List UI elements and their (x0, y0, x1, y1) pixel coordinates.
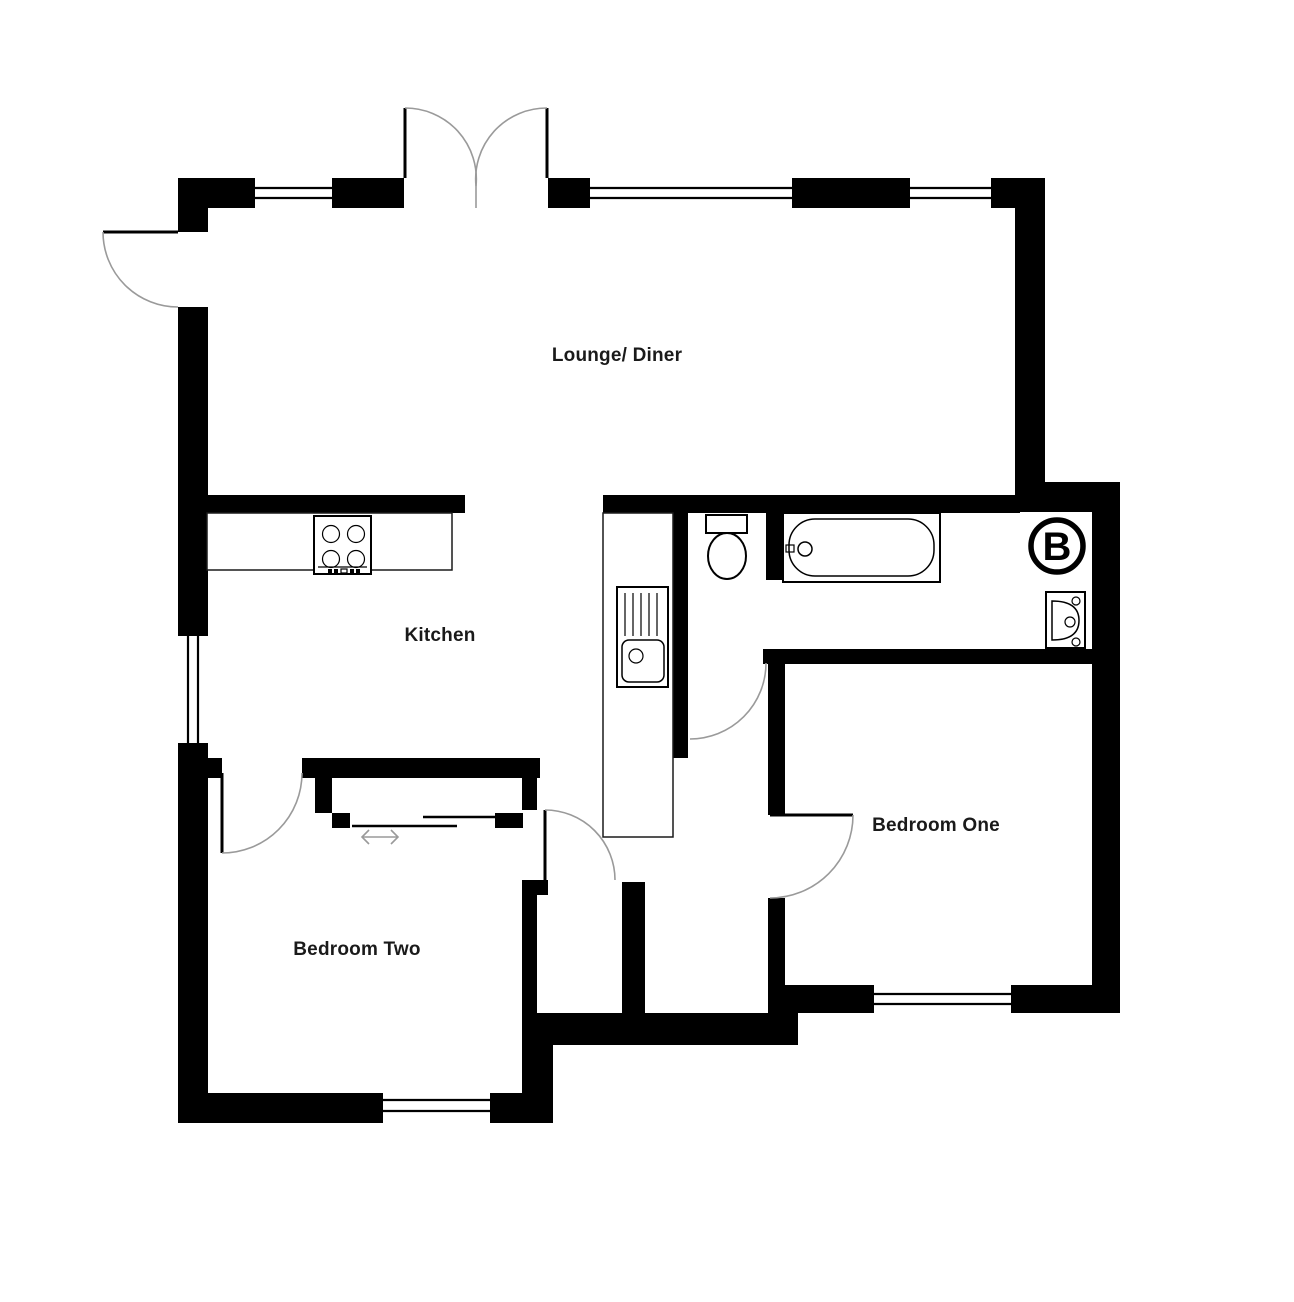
wall (178, 1093, 383, 1123)
kitchen-sink (617, 587, 668, 687)
wall (537, 1013, 798, 1045)
bathroom-fixtures: B (706, 513, 1085, 648)
kitchen-fixtures (207, 513, 673, 837)
wall (178, 743, 208, 1123)
wall (766, 513, 782, 580)
wall (991, 178, 1045, 208)
slide-direction-arrow-icon (362, 830, 398, 844)
window (188, 636, 198, 743)
boiler-letter: B (1043, 525, 1072, 569)
wall (178, 307, 208, 636)
entrance-door (103, 232, 178, 307)
bathroom-door (690, 663, 766, 739)
wall (332, 178, 404, 208)
wall (622, 882, 645, 1013)
room-label-kitchen: Kitchen (404, 625, 475, 647)
wall (178, 178, 208, 232)
room-label-lounge-diner: Lounge/ Diner (552, 345, 682, 367)
wall (522, 773, 537, 810)
wall (768, 985, 874, 1013)
wall (768, 649, 785, 815)
sliding-door (352, 817, 497, 844)
wall (672, 513, 688, 758)
floor-plan-drawing: B (0, 0, 1294, 1302)
bath (783, 513, 940, 582)
wall (1015, 208, 1045, 498)
window (383, 1100, 490, 1111)
window (255, 188, 332, 198)
wall (198, 495, 465, 513)
french-doors (405, 108, 547, 208)
wall (302, 758, 540, 778)
wash-basin (1046, 592, 1085, 648)
room-label-bedroom-one: Bedroom One (872, 815, 1000, 837)
boiler-symbol: B (1031, 520, 1083, 572)
toilet (706, 515, 747, 579)
wall (768, 898, 785, 985)
wall (792, 178, 910, 208)
floor-plan: B Lounge/ Diner Kitchen Bedroom One Bedr… (0, 0, 1294, 1302)
window (874, 994, 1011, 1004)
wall (1092, 512, 1120, 1013)
wall (548, 178, 590, 208)
wall (522, 880, 537, 1013)
room-label-bedroom-two: Bedroom Two (293, 939, 420, 961)
bedroom-two-door (222, 773, 302, 853)
bedroom-one-door (770, 815, 853, 898)
wall (603, 495, 1020, 513)
wall (198, 758, 222, 778)
wall (495, 813, 523, 828)
wall (763, 649, 1092, 664)
wall (315, 773, 332, 813)
hob (314, 516, 371, 574)
window (590, 188, 792, 198)
wall (332, 813, 350, 828)
window (910, 188, 991, 198)
wall (537, 880, 548, 895)
